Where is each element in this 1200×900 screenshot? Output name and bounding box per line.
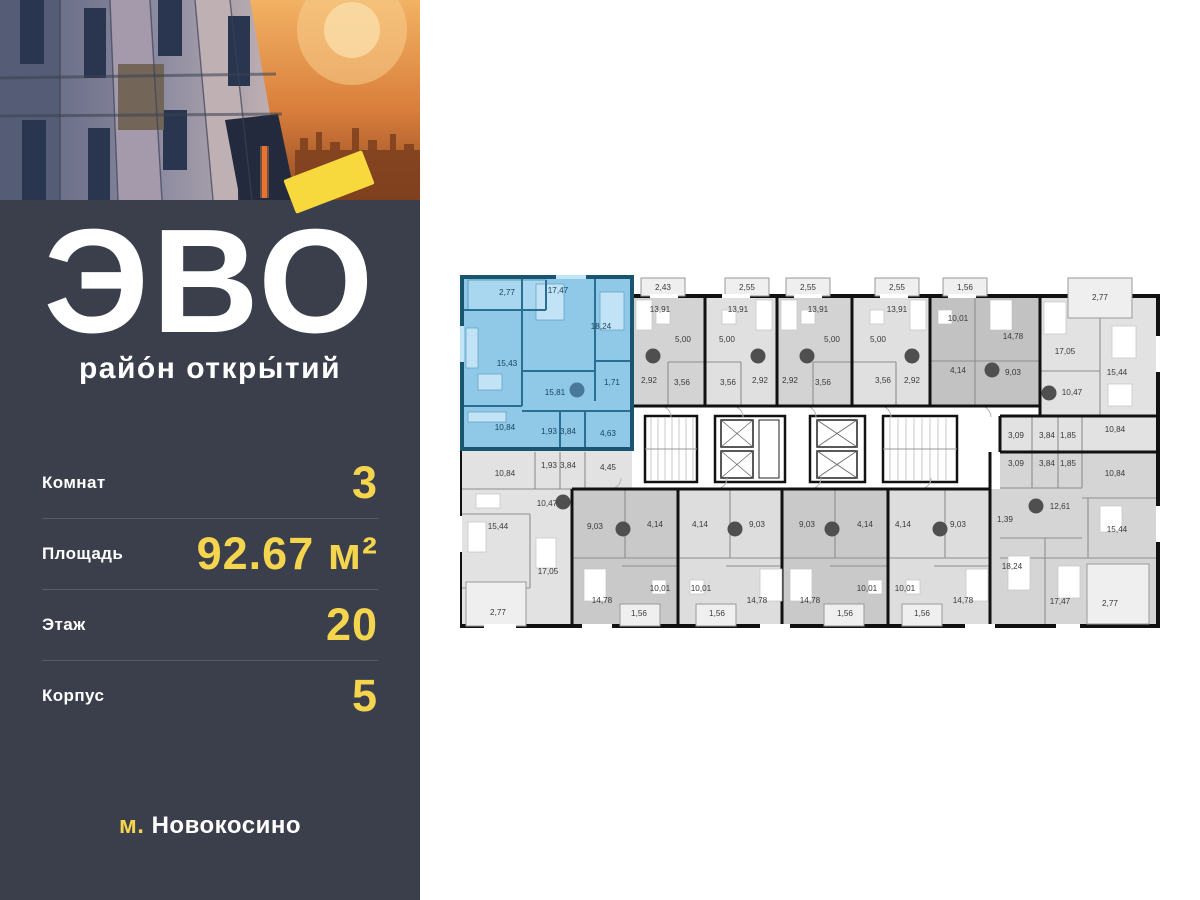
building-facade — [0, 0, 296, 200]
room-area-label: 1,56 — [709, 609, 725, 618]
room-area-label: 1,85 — [1060, 459, 1076, 468]
room-area-label: 4,63 — [600, 429, 616, 438]
unit-marker — [570, 383, 585, 398]
room-area-label: 15,44 — [1107, 368, 1128, 377]
room-area-label: 14,78 — [592, 596, 613, 605]
unit-marker — [1029, 499, 1044, 514]
room-area-label: 13,91 — [887, 305, 908, 314]
room-area-label: 2,55 — [800, 283, 816, 292]
room-area-label: 10,47 — [537, 499, 558, 508]
unit-marker — [646, 349, 661, 364]
room-area-label: 10,47 — [1062, 388, 1083, 397]
room-area-label: 9,03 — [749, 520, 765, 529]
room-area-label: 2,92 — [752, 376, 768, 385]
room-area-label: 2,77 — [1102, 599, 1118, 608]
room-area-label: 3,84 — [1039, 459, 1055, 468]
room-area-label: 18,24 — [1002, 562, 1023, 571]
room-area-label: 17,47 — [1050, 597, 1071, 606]
room-area-label: 3,09 — [1008, 431, 1024, 440]
room-area-label: 14,78 — [1003, 332, 1024, 341]
room-area-label: 2,92 — [641, 376, 657, 385]
room-area-label: 1,93 — [541, 461, 557, 470]
room-area-label: 4,14 — [647, 520, 663, 529]
room-area-label: 4,45 — [600, 463, 616, 472]
room-area-label: 3,09 — [1008, 459, 1024, 468]
room-area-label: 10,84 — [495, 423, 516, 432]
room-area-label: 2,77 — [1092, 293, 1108, 302]
elevator-core-2 — [810, 416, 865, 482]
room-area-label: 10,01 — [650, 584, 671, 593]
room-area-label: 3,56 — [875, 376, 891, 385]
floor-plan: 2,7717,4718,2415,4315,811,7110,841,933,8… — [460, 266, 1160, 637]
room-area-label: 1,56 — [914, 609, 930, 618]
room-area-label: 2,92 — [904, 376, 920, 385]
room-area-label: 4,14 — [950, 366, 966, 375]
area-value: 92.67 м² — [197, 528, 378, 580]
room-area-label: 15,44 — [1107, 525, 1128, 534]
room-area-label: 4,14 — [895, 520, 911, 529]
unit-marker — [800, 349, 815, 364]
building-label: Корпус — [42, 686, 104, 706]
room-area-label: 13,91 — [808, 305, 829, 314]
room-area-label: 2,77 — [490, 608, 506, 617]
room-area-label: 10,01 — [691, 584, 712, 593]
room-area-label: 2,92 — [782, 376, 798, 385]
room-area-label: 4,14 — [857, 520, 873, 529]
room-area-label: 2,77 — [499, 288, 515, 297]
room-area-label: 15,43 — [497, 359, 518, 368]
room-area-label: 1,93 — [541, 427, 557, 436]
area-label: Площадь — [42, 544, 123, 564]
stair-core-2 — [883, 416, 957, 482]
spec-row-building: Корпус 5 — [42, 661, 378, 731]
room-area-label: 1,56 — [631, 609, 647, 618]
unit-marker — [556, 495, 571, 510]
room-area-label: 17,05 — [1055, 347, 1076, 356]
room-area-label: 5,00 — [870, 335, 886, 344]
elevator-core — [715, 416, 785, 482]
unit-marker — [933, 522, 948, 537]
room-area-label: 10,84 — [1105, 425, 1126, 434]
room-area-label: 2,43 — [655, 283, 671, 292]
room-area-label: 13,91 — [650, 305, 671, 314]
room-area-label: 3,84 — [1039, 431, 1055, 440]
room-area-label: 14,78 — [800, 596, 821, 605]
room-area-label: 3,56 — [674, 378, 690, 387]
rooms-label: Комнат — [42, 473, 106, 493]
room-area-label: 14,78 — [953, 596, 974, 605]
info-panel: ЭВО райо́н откры́тий Комнат 3 Площадь 92… — [0, 0, 420, 900]
room-area-label: 2,55 — [739, 283, 755, 292]
unit-marker — [1042, 386, 1057, 401]
room-area-label: 9,03 — [799, 520, 815, 529]
unit-marker — [616, 522, 631, 537]
room-area-label: 5,00 — [719, 335, 735, 344]
room-area-label: 9,03 — [1005, 368, 1021, 377]
metro-prefix: м. — [119, 812, 144, 839]
spec-row-rooms: Комнат 3 — [42, 448, 378, 519]
room-area-label: 17,05 — [538, 567, 559, 576]
metro-station: м. Новокосино — [0, 812, 420, 840]
stair-core — [645, 416, 697, 482]
unit-marker — [825, 522, 840, 537]
room-area-label: 15,81 — [545, 388, 566, 397]
room-area-label: 17,47 — [548, 286, 569, 295]
room-area-label: 5,00 — [824, 335, 840, 344]
rooms-value: 3 — [352, 457, 378, 509]
room-area-label: 4,14 — [692, 520, 708, 529]
room-area-label: 3,84 — [560, 461, 576, 470]
room-area-label: 13,91 — [728, 305, 749, 314]
room-area-label: 15,44 — [488, 522, 509, 531]
highlighted-apartment[interactable] — [462, 277, 632, 449]
room-area-label: 3,84 — [560, 427, 576, 436]
room-area-label: 2,55 — [889, 283, 905, 292]
room-area-label: 3,56 — [815, 378, 831, 387]
metro-name: Новокосино — [152, 812, 301, 839]
room-area-label: 1,56 — [837, 609, 853, 618]
floor-label: Этаж — [42, 615, 86, 635]
room-area-label: 10,01 — [948, 314, 969, 323]
unit-marker — [905, 349, 920, 364]
room-area-label: 10,84 — [1105, 469, 1126, 478]
floor-value: 20 — [326, 599, 378, 651]
room-area-label: 18,24 — [591, 322, 612, 331]
room-area-label: 5,00 — [675, 335, 691, 344]
room-area-label: 9,03 — [950, 520, 966, 529]
unit-marker — [985, 363, 1000, 378]
room-area-label: 14,78 — [747, 596, 768, 605]
room-area-label: 10,84 — [495, 469, 516, 478]
building-value: 5 — [352, 670, 378, 722]
room-area-label: 1,85 — [1060, 431, 1076, 440]
room-area-label: 1,71 — [604, 378, 620, 387]
room-area-label: 9,03 — [587, 522, 603, 531]
room-area-label: 1,56 — [957, 283, 973, 292]
spec-row-floor: Этаж 20 — [42, 590, 378, 661]
unit-marker — [728, 522, 743, 537]
room-area-label: 3,56 — [720, 378, 736, 387]
logo-text: ЭВО — [0, 208, 420, 356]
unit-marker — [751, 349, 766, 364]
spec-rows: Комнат 3 Площадь 92.67 м² Этаж 20 Корпус… — [42, 448, 378, 731]
room-area-label: 10,01 — [895, 584, 916, 593]
room-area-label: 10,01 — [857, 584, 878, 593]
room-area-label: 12,61 — [1050, 502, 1071, 511]
spec-row-area: Площадь 92.67 м² — [42, 519, 378, 590]
room-area-label: 1,39 — [997, 515, 1013, 524]
